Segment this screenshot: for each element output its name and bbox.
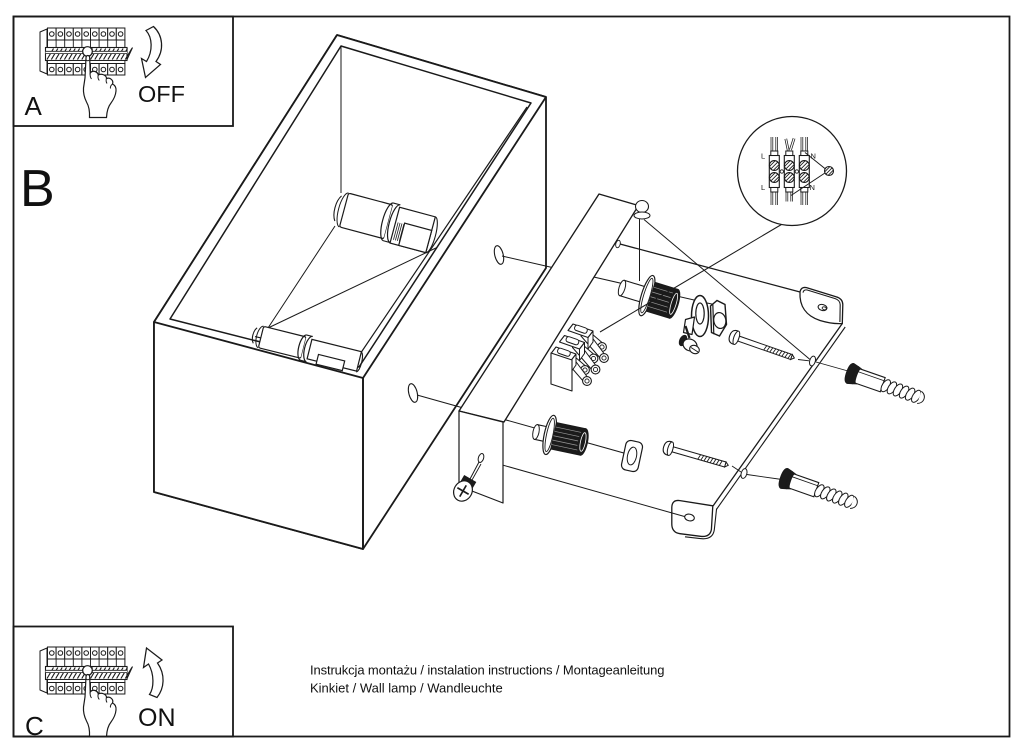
svg-text:A: A <box>25 91 43 121</box>
svg-text:ON: ON <box>138 704 176 732</box>
svg-text:B: B <box>20 160 55 218</box>
svg-text:Instrukcja montażu / instalati: Instrukcja montażu / instalation instruc… <box>310 663 664 678</box>
svg-text:C: C <box>25 711 44 741</box>
svg-text:OFF: OFF <box>138 81 185 107</box>
svg-text:N: N <box>810 183 815 192</box>
svg-text:L: L <box>761 183 765 192</box>
svg-text:L: L <box>761 152 765 161</box>
svg-text:Kinkiet / Wall lamp / Wandleuc: Kinkiet / Wall lamp / Wandleuchte <box>310 681 503 696</box>
